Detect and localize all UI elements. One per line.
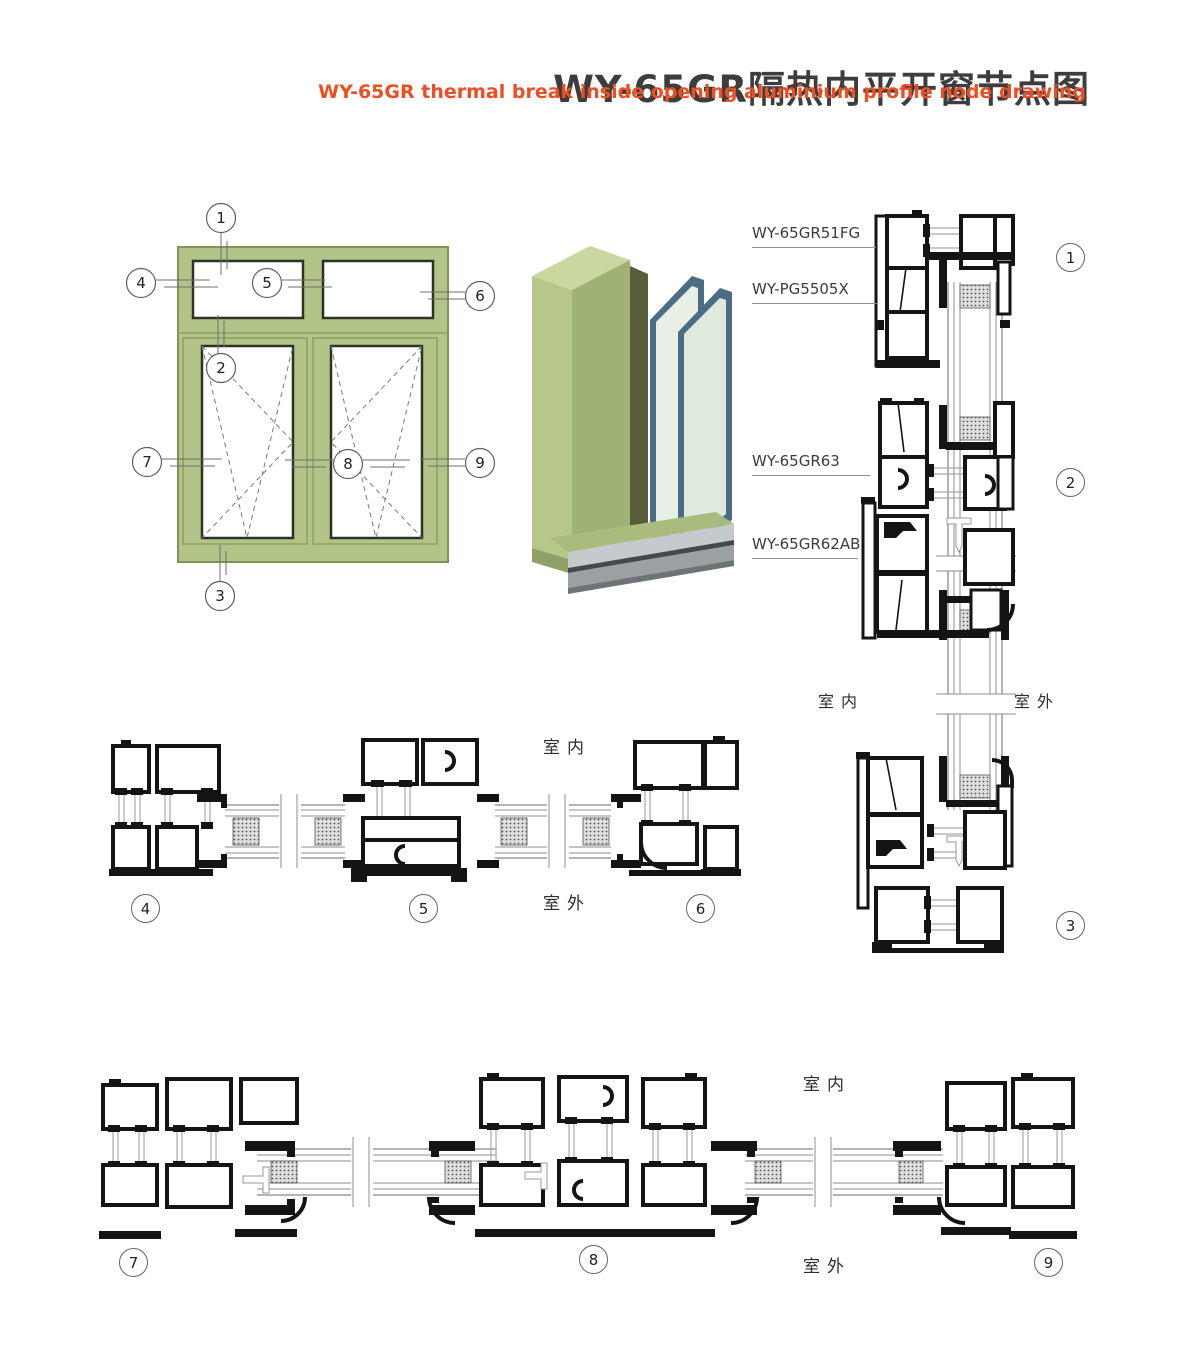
section-marker-1: 1: [1056, 243, 1085, 272]
section-marker-5: 5: [409, 894, 438, 923]
glass-run-4-5: [225, 794, 345, 868]
elevation-callout-7: 7: [133, 448, 162, 477]
section-4-drawing: [109, 740, 227, 876]
profile-label-head-frame: WY-65GR51FG: [752, 224, 876, 248]
section-9-drawing: [893, 1073, 1077, 1239]
outdoor-label-bottom-row: 室外: [803, 1252, 851, 1277]
svg-text:1: 1: [216, 209, 226, 227]
elevation-callout-9: 9: [466, 449, 495, 478]
elevation-callout-4: 4: [127, 269, 156, 298]
section-7-drawing: [99, 1079, 305, 1239]
section-marker-2-number: 2: [1066, 474, 1076, 492]
profile-label-casement-sash: WY-65GR62AB: [752, 535, 858, 559]
section-marker-4-number: 4: [141, 900, 151, 918]
elevation-callout-1: 1: [207, 204, 236, 233]
section-marker-8-number: 8: [589, 1251, 599, 1269]
indoor-label-middle-row: 室内: [543, 733, 591, 758]
elevation-callout-2: 2: [207, 354, 236, 383]
page-subtitle: WY-65GR thermal break inside opening alu…: [318, 81, 1086, 103]
section-marker-9: 9: [1034, 1248, 1063, 1277]
profile-3d-render: [520, 220, 755, 595]
glass-break: [279, 796, 301, 866]
glass-run-5-6: [495, 794, 611, 868]
svg-text:9: 9: [475, 454, 485, 472]
section-marker-6: 6: [686, 894, 715, 923]
outdoor-label-middle-row: 室外: [543, 889, 591, 914]
horizontal-section-row-bottom: [95, 1065, 1095, 1245]
vertical-section-column: [846, 200, 1026, 960]
section-marker-4: 4: [131, 894, 160, 923]
svg-text:2: 2: [216, 359, 226, 377]
glass-break: [547, 796, 569, 866]
elevation-callout-3: 3: [206, 582, 235, 611]
svg-text:6: 6: [475, 287, 485, 305]
section-marker-3: 3: [1056, 911, 1085, 940]
svg-text:5: 5: [262, 274, 272, 292]
section-marker-2: 2: [1056, 468, 1085, 497]
svg-text:4: 4: [136, 274, 146, 292]
section-marker-7: 7: [119, 1248, 148, 1277]
glass-break: [351, 1139, 373, 1205]
window-elevation-diagram: 1 4 5 6 2 7 8 9 3: [110, 195, 510, 625]
svg-text:8: 8: [343, 455, 353, 473]
render-frame-block: [532, 246, 648, 574]
profile-label-transom-sash: WY-65GR63: [752, 452, 870, 476]
section-marker-9-number: 9: [1044, 1254, 1054, 1272]
section-6-drawing: [611, 736, 741, 876]
indoor-label-right-column: 室内: [818, 688, 864, 712]
profile-label-glazing-bead: WY-PG5505X: [752, 280, 878, 304]
svg-text:3: 3: [215, 587, 225, 605]
render-glass-unit: [650, 276, 732, 554]
section-marker-5-number: 5: [419, 900, 429, 918]
section-marker-7-number: 7: [129, 1254, 139, 1272]
section-marker-6-number: 6: [696, 900, 706, 918]
section-1-drawing: [876, 210, 1013, 368]
section-marker-8: 8: [579, 1245, 608, 1274]
elevation-callout-6: 6: [466, 282, 495, 311]
section-marker-1-number: 1: [1066, 249, 1076, 267]
outdoor-label-right-column: 室外: [1014, 688, 1060, 712]
glass-break: [813, 1139, 833, 1205]
svg-text:7: 7: [142, 453, 152, 471]
glass-break-2: [938, 694, 1014, 714]
elevation-callout-5: 5: [253, 269, 282, 298]
elevation-callout-8: 8: [334, 450, 363, 479]
horizontal-section-row-top: [105, 730, 745, 890]
section-5-drawing: [343, 740, 499, 882]
indoor-label-bottom-row: 室内: [803, 1070, 851, 1095]
section-marker-3-number: 3: [1066, 917, 1076, 935]
